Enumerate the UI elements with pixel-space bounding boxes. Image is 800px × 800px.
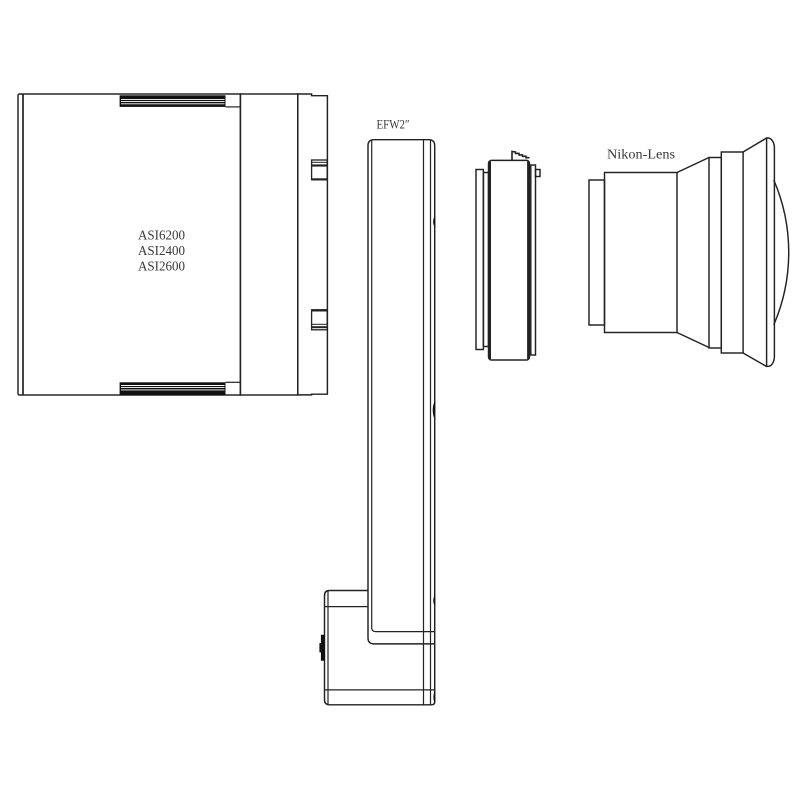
svg-text:ASI2600: ASI2600 bbox=[138, 258, 185, 273]
svg-text:EFW2″: EFW2″ bbox=[377, 117, 410, 132]
svg-text:ASI2400: ASI2400 bbox=[138, 243, 185, 258]
svg-text:ASI6200: ASI6200 bbox=[138, 228, 185, 243]
svg-text:Nikon-Lens: Nikon-Lens bbox=[607, 147, 675, 162]
